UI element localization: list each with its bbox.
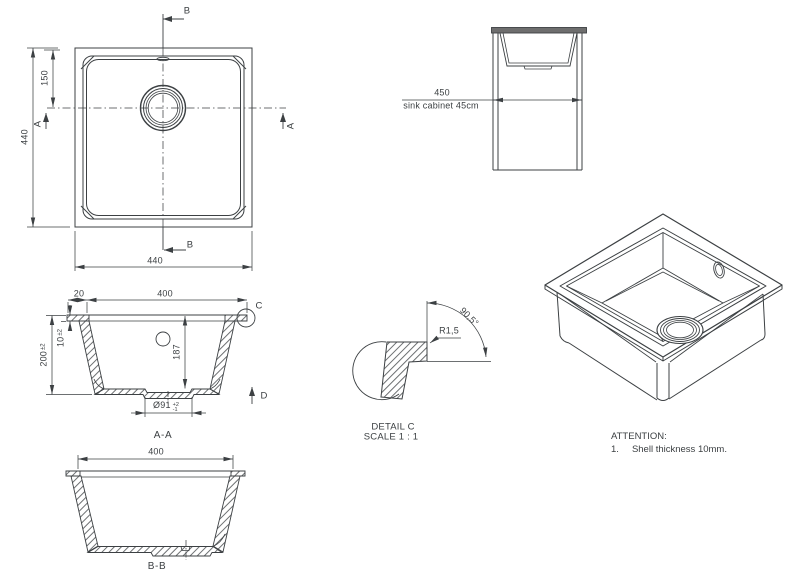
plan-dim-height: 440 [21,129,30,145]
attention-title: ATTENTION: [611,431,727,444]
aa-dim-height: 200±2 [40,343,49,366]
plan-dim-drain-offset: 150 [41,70,50,86]
cabinet-dim-width: 450 [434,89,450,98]
dc-caption-scale: SCALE 1 : 1 [364,432,418,442]
aa-dim-rim-thickness-value: 10 [56,337,66,347]
aa-dim-rim-thickness: 10±2 [57,329,66,347]
aa-detail-c-label: C [255,301,262,311]
iso-view-linework [545,214,782,401]
drawing-linework [0,0,800,579]
section-bb-linework [66,455,245,560]
cabinet-caption: sink cabinet 45cm [403,102,478,111]
plan-section-b-top-label: B [184,6,191,16]
bb-dim-inner-width: 400 [148,448,164,457]
aa-view-d-label: D [260,391,267,401]
aa-dim-drain-tol-minus: -1 [173,408,179,413]
aa-caption: A-A [154,431,172,441]
cabinet-view-linework [402,28,587,171]
aa-dim-drain-value: Ø91 [153,400,171,410]
attention-item-number: 1. [611,444,619,457]
aa-dim-drain: Ø91+2-1 [153,401,179,413]
aa-dim-rim-thickness-tol: ±2 [57,329,63,336]
aa-dim-depth: 187 [173,344,182,360]
attention-item-text: Shell thickness 10mm. [632,444,727,457]
aa-dim-height-value: 200 [39,351,49,367]
aa-dim-height-tol: ±2 [40,343,46,350]
plan-section-a-left-label: A [33,121,43,128]
plan-section-b-bottom-label: B [187,240,194,250]
attention-note: ATTENTION: 1. Shell thickness 10mm. [611,431,727,456]
plan-dim-width: 440 [147,257,163,266]
plan-view-linework [27,14,286,271]
bb-caption: B-B [148,562,166,572]
plan-section-a-right-label: A [286,123,296,130]
section-aa-linework [46,300,255,417]
aa-dim-inner-width: 400 [157,290,173,299]
dc-dim-radius: R1,5 [439,327,459,336]
aa-dim-flange: 20 [74,290,84,299]
drawing-sheet: B B A A 150 440 440 450 sink cabinet 45c… [0,0,800,579]
